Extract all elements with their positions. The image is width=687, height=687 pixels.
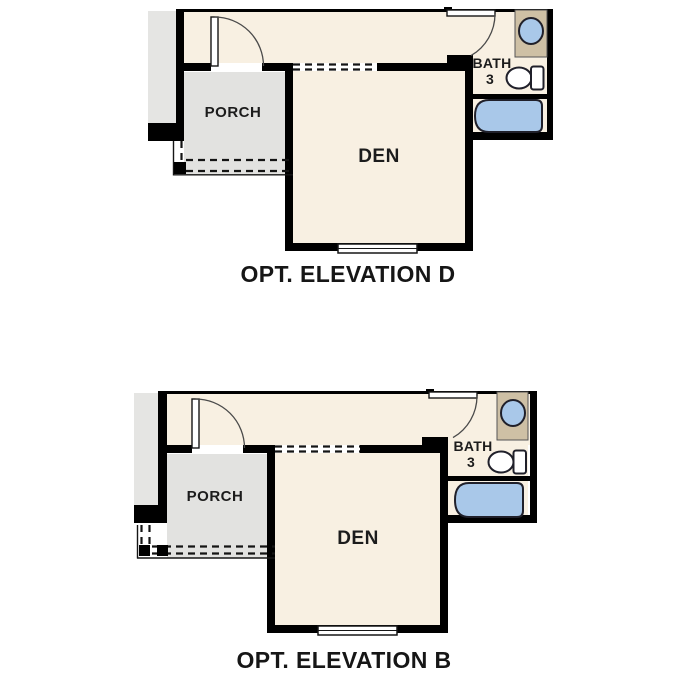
- bathtub: [455, 483, 523, 517]
- den-label: DEN: [358, 146, 400, 167]
- wall-den-left: [285, 63, 293, 251]
- porch-floor: [167, 454, 275, 558]
- porch-label: PORCH: [205, 104, 262, 121]
- plan-caption-d: OPT. ELEVATION D: [240, 261, 455, 287]
- entry-door-leaf: [211, 17, 218, 66]
- entry-door-leaf: [192, 399, 199, 448]
- floor-plans-drawing: PORCH DEN BATH 3 OPT. ELEVATION D: [0, 0, 687, 687]
- porch-label: PORCH: [187, 488, 244, 505]
- bath-number: 3: [486, 71, 494, 87]
- wall-porch-top-left: [167, 445, 192, 453]
- bath-door-leaf: [447, 10, 495, 16]
- bath-door-leaf: [429, 392, 477, 398]
- toilet-tank: [514, 451, 527, 474]
- wall-top-edge: [176, 9, 553, 12]
- wall-den-right: [440, 437, 448, 633]
- plan-elevation-d: PORCH DEN BATH 3 OPT. ELEVATION D: [148, 7, 553, 287]
- wall-den-top: [360, 445, 448, 453]
- wall-top-edge: [158, 391, 537, 394]
- wall-corner-block: [134, 505, 167, 523]
- wall-den-left: [267, 445, 275, 633]
- wall-corner-block: [148, 123, 184, 141]
- sink-basin: [501, 400, 525, 426]
- wall-den-right: [465, 55, 473, 251]
- bath-label: BATH: [472, 55, 511, 71]
- den-label: DEN: [337, 528, 379, 549]
- floor-plan-sheet: PORCH DEN BATH 3 OPT. ELEVATION D: [0, 0, 687, 687]
- bathtub: [475, 100, 542, 132]
- wall-porch-top-left: [184, 63, 211, 71]
- wall-left: [158, 392, 167, 523]
- porch-post: [174, 162, 186, 174]
- sink-basin: [519, 18, 543, 44]
- plan-elevation-b: PORCH DEN BATH 3 OPT. ELEVATION B: [134, 389, 537, 673]
- wall-left: [176, 10, 184, 141]
- plan-caption-b: OPT. ELEVATION B: [236, 647, 451, 673]
- wall-den-top: [377, 63, 473, 71]
- exterior-strip: [148, 11, 176, 123]
- exterior-strip: [134, 393, 159, 505]
- toilet-bowl: [489, 452, 514, 473]
- wall-toilet-partition: [444, 476, 530, 481]
- porch-post-1: [139, 545, 150, 556]
- wall-tub-bottom: [467, 132, 553, 140]
- wall-bath-right: [530, 392, 537, 520]
- wall-bath-right: [547, 10, 553, 140]
- wall-toilet-partition: [469, 94, 553, 99]
- toilet-tank: [531, 67, 544, 90]
- porch-post-2: [157, 545, 168, 556]
- bath-label: BATH: [453, 438, 492, 454]
- bath-number: 3: [467, 454, 475, 470]
